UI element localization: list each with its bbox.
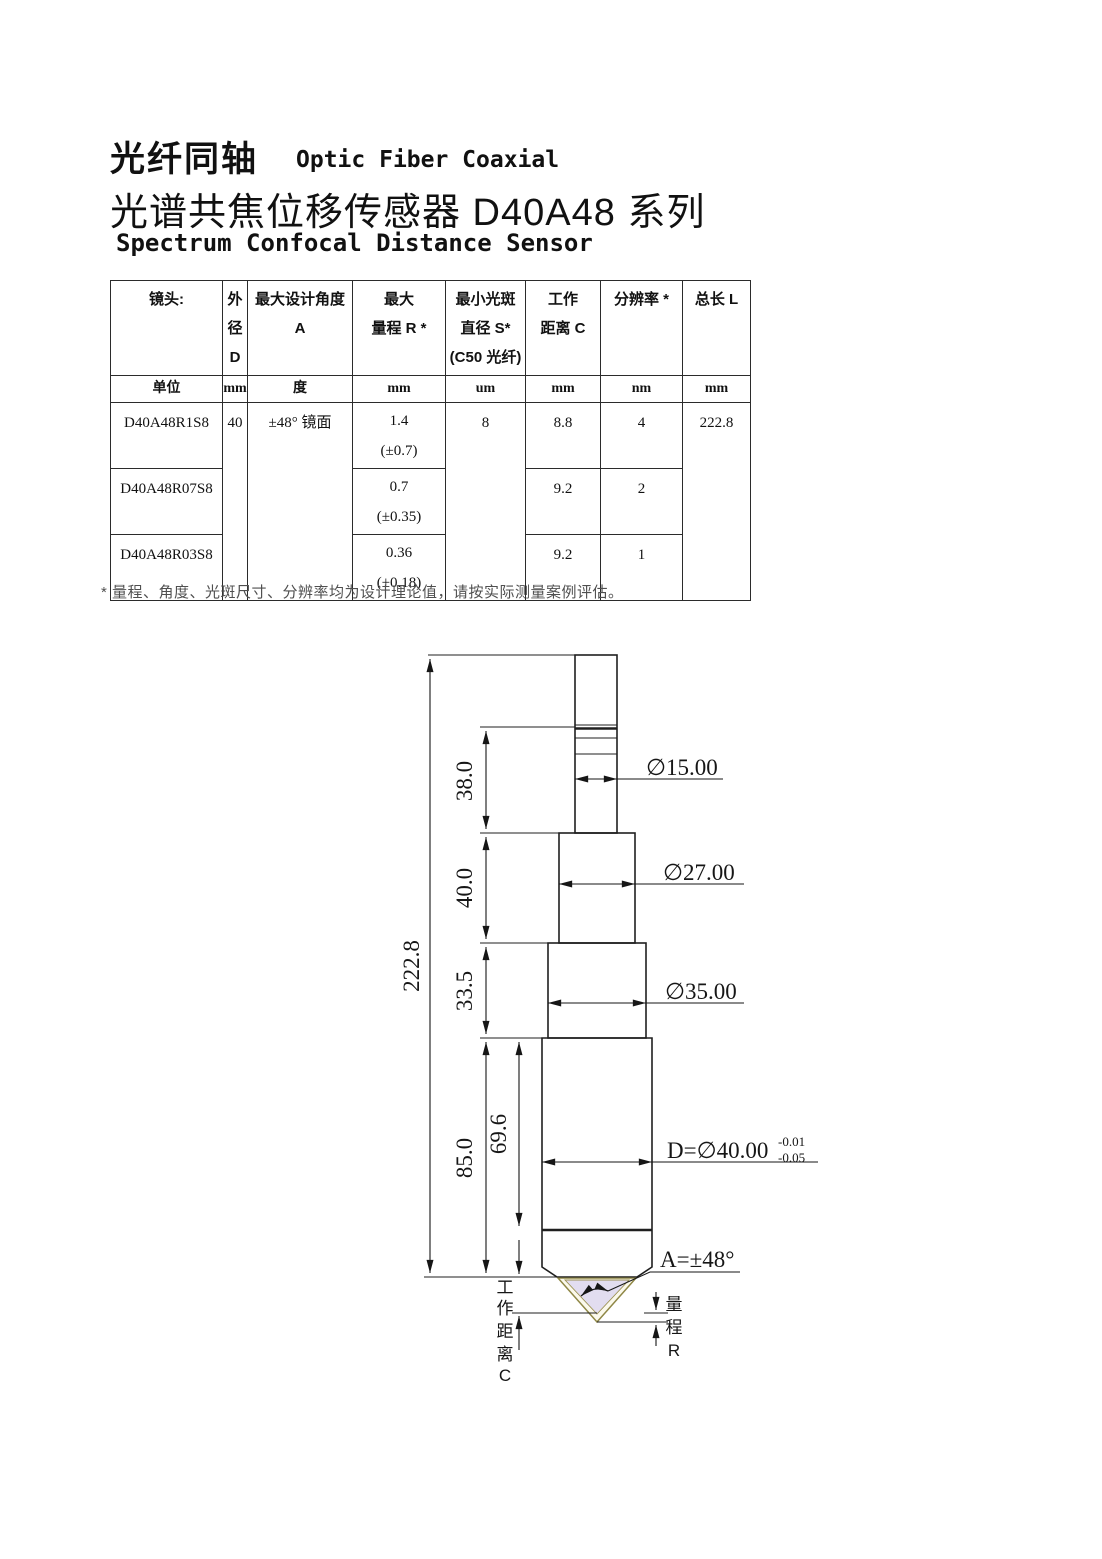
label-dia-sec3: ∅35.00 xyxy=(665,979,737,1004)
label-dia-body: D=∅40.00 xyxy=(667,1138,768,1163)
label-len-fiber: 38.0 xyxy=(452,761,477,801)
label-dia-body-tol-upper: -0.01 xyxy=(778,1134,805,1149)
range-char: 程 xyxy=(666,1318,683,1337)
label-dia-body-tol-lower: -0.05 xyxy=(778,1150,805,1165)
wd-char: 离 xyxy=(497,1345,514,1364)
working-distance-label: 工 作 距 离 C xyxy=(497,1278,514,1385)
mid-section-27 xyxy=(559,833,635,943)
wd-char: 距 xyxy=(497,1322,514,1341)
wd-char: 工 xyxy=(497,1278,514,1297)
label-angle: A=±48° xyxy=(660,1247,734,1272)
label-total-length: 222.8 xyxy=(399,940,424,992)
dimension-lines xyxy=(430,659,818,1350)
measuring-range-label: 量 程 R xyxy=(666,1295,683,1360)
wd-char: 作 xyxy=(497,1299,514,1318)
dimension-drawing: 222.8 38.0 40.0 33.5 85.0 69.6 ∅15.00 ∅2… xyxy=(0,0,1102,1559)
label-len-sec2: 40.0 xyxy=(452,868,477,908)
main-body-40 xyxy=(542,1038,652,1277)
fiber-connector-section xyxy=(575,655,617,833)
sensor-outline xyxy=(542,655,652,1277)
wd-char: C xyxy=(499,1366,511,1385)
label-dia-fiber: ∅15.00 xyxy=(646,755,718,780)
range-char: R xyxy=(668,1341,680,1360)
mid-section-35 xyxy=(548,943,646,1038)
datasheet-page: 光纤同轴Optic Fiber Coaxial 光谱共焦位移传感器 D40A48… xyxy=(0,0,1102,1559)
label-len-lens: 69.6 xyxy=(486,1114,511,1154)
label-len-sec3: 33.5 xyxy=(452,971,477,1011)
measuring-cone xyxy=(558,1278,636,1322)
label-len-body: 85.0 xyxy=(452,1138,477,1178)
label-dia-sec2: ∅27.00 xyxy=(663,860,735,885)
range-ticks xyxy=(597,1313,668,1322)
range-char: 量 xyxy=(666,1295,683,1314)
